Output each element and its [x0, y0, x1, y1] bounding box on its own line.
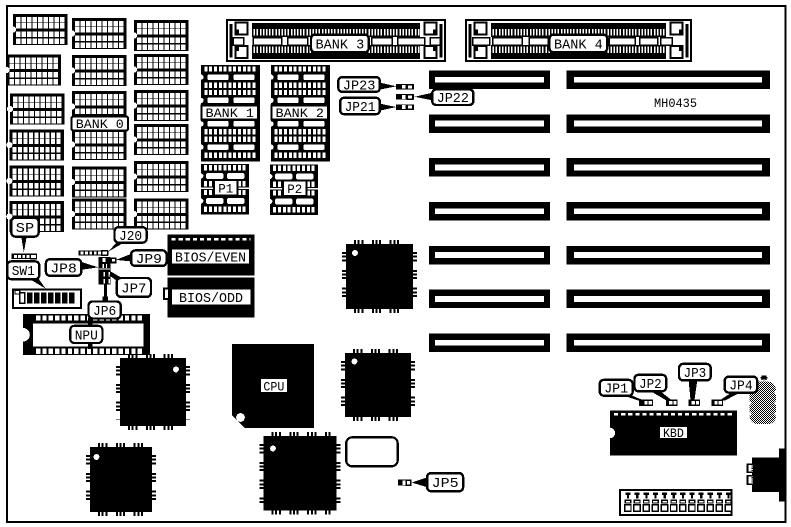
- svg-text:BANK 3: BANK 3: [316, 38, 365, 53]
- svg-text:JP23: JP23: [343, 79, 376, 94]
- svg-text:P1: P1: [218, 182, 233, 197]
- svg-text:JP7: JP7: [121, 282, 146, 297]
- svg-text:JP21: JP21: [345, 101, 376, 116]
- svg-text:BANK 2: BANK 2: [276, 106, 325, 121]
- svg-text:SP: SP: [16, 222, 34, 237]
- svg-text:JP5: JP5: [432, 477, 459, 492]
- svg-text:BIOS/EVEN: BIOS/EVEN: [175, 252, 246, 267]
- svg-text:BANK 1: BANK 1: [206, 106, 255, 121]
- svg-text:JP6: JP6: [93, 305, 116, 320]
- svg-text:BANK 4: BANK 4: [554, 38, 603, 53]
- svg-text:JP8: JP8: [50, 262, 76, 277]
- svg-text:MH0435: MH0435: [654, 97, 697, 111]
- svg-text:JP1: JP1: [604, 383, 628, 398]
- svg-text:CPU: CPU: [263, 379, 284, 394]
- svg-text:BIOS/ODD: BIOS/ODD: [179, 292, 243, 307]
- svg-text:JP3: JP3: [684, 367, 707, 382]
- svg-text:JP2: JP2: [639, 378, 662, 393]
- svg-text:BANK 0: BANK 0: [76, 117, 124, 132]
- svg-text:JP9: JP9: [136, 253, 162, 268]
- svg-text:SW1: SW1: [12, 265, 35, 280]
- svg-text:NPU: NPU: [75, 329, 98, 344]
- svg-text:JP4: JP4: [729, 380, 753, 395]
- svg-text:P2: P2: [287, 182, 302, 197]
- svg-text:J20: J20: [119, 230, 142, 245]
- svg-text:JP22: JP22: [437, 92, 469, 107]
- svg-text:KBD: KBD: [663, 427, 684, 441]
